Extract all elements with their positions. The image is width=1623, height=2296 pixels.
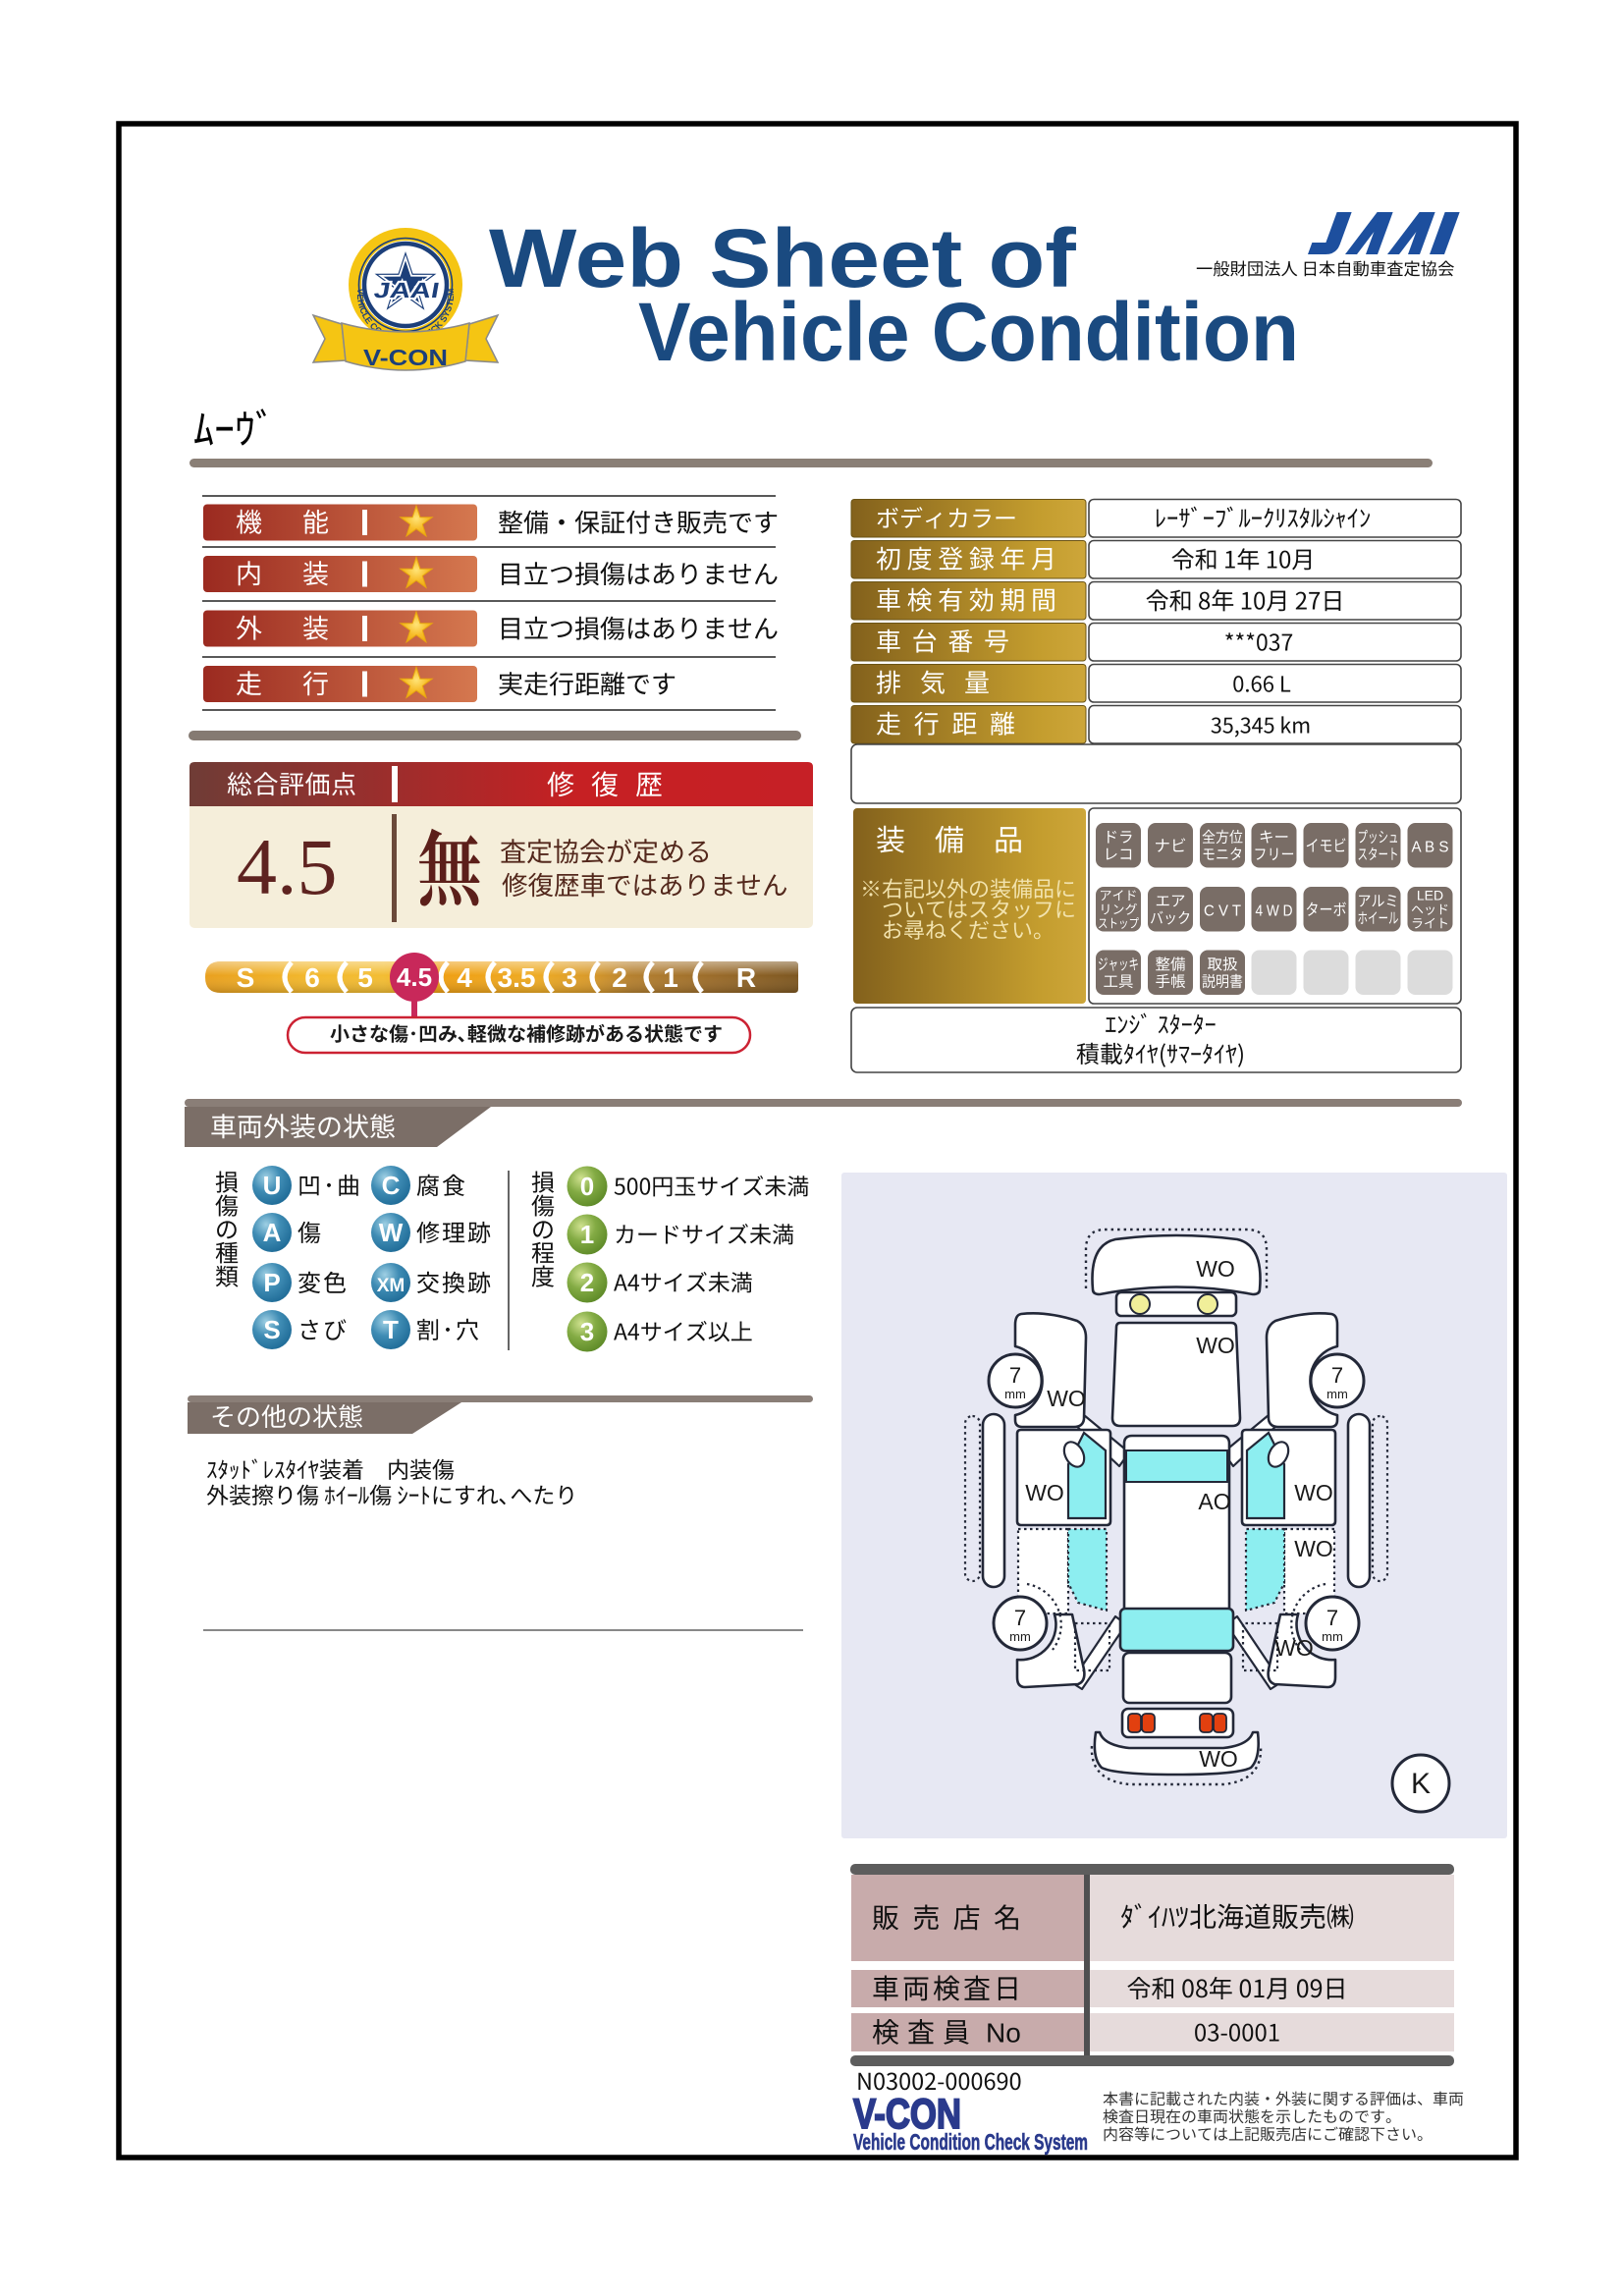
- svg-text:WO: WO: [1047, 1386, 1086, 1411]
- svg-text:mm: mm: [1004, 1387, 1026, 1401]
- svg-text:3.5: 3.5: [498, 962, 536, 993]
- svg-text:K: K: [1411, 1768, 1431, 1800]
- svg-text:U: U: [263, 1171, 282, 1200]
- svg-text:5: 5: [357, 962, 373, 993]
- svg-text:3: 3: [562, 962, 577, 993]
- svg-text:A: A: [263, 1218, 282, 1247]
- svg-text:WO: WO: [1199, 1746, 1238, 1772]
- svg-text:1: 1: [580, 1220, 594, 1249]
- svg-text:4 W D: 4 W D: [1256, 903, 1293, 920]
- svg-text:LED: LED: [1417, 887, 1443, 902]
- svg-text:7: 7: [1331, 1363, 1343, 1388]
- svg-text:WO: WO: [1294, 1536, 1333, 1561]
- svg-text:2: 2: [580, 1268, 594, 1297]
- svg-text:P: P: [263, 1268, 280, 1297]
- svg-text:6: 6: [304, 962, 320, 993]
- svg-text:S: S: [237, 962, 255, 993]
- svg-text:7: 7: [1014, 1606, 1026, 1630]
- svg-text:JAAI: JAAI: [372, 278, 441, 302]
- svg-text:4: 4: [457, 962, 472, 993]
- svg-text:4.5: 4.5: [397, 962, 432, 992]
- svg-text:0: 0: [580, 1172, 594, 1201]
- svg-text:C V T: C V T: [1204, 903, 1241, 920]
- svg-text:T: T: [383, 1315, 399, 1344]
- svg-text:V-CON: V-CON: [363, 345, 448, 370]
- svg-text:No: No: [986, 2018, 1021, 2049]
- svg-text:2: 2: [612, 962, 627, 993]
- svg-text:7: 7: [1326, 1606, 1338, 1630]
- svg-text:mm: mm: [1322, 1629, 1343, 1644]
- svg-text:7: 7: [1009, 1363, 1021, 1388]
- svg-text:3: 3: [580, 1317, 594, 1346]
- svg-text:R: R: [736, 962, 756, 993]
- svg-text:S: S: [263, 1315, 280, 1344]
- svg-text:WO: WO: [1196, 1256, 1235, 1282]
- svg-text:A B S: A B S: [1412, 840, 1449, 856]
- svg-text:XM: XM: [377, 1276, 406, 1296]
- svg-text:WO: WO: [1274, 1635, 1314, 1661]
- svg-text:AO: AO: [1198, 1489, 1230, 1514]
- svg-text:1: 1: [663, 962, 678, 993]
- svg-text:mm: mm: [1326, 1387, 1348, 1401]
- svg-text:4.5: 4.5: [237, 822, 338, 911]
- svg-text:Vehicle Condition Check System: Vehicle Condition Check System: [853, 2129, 1088, 2155]
- svg-text:WO: WO: [1294, 1480, 1333, 1505]
- svg-text:WO: WO: [1025, 1480, 1064, 1505]
- svg-text:W: W: [379, 1218, 404, 1247]
- svg-text:WO: WO: [1196, 1333, 1235, 1358]
- svg-text:C: C: [382, 1171, 401, 1200]
- svg-text:mm: mm: [1009, 1629, 1031, 1644]
- svg-text:Vehicle Condition: Vehicle Condition: [638, 287, 1299, 378]
